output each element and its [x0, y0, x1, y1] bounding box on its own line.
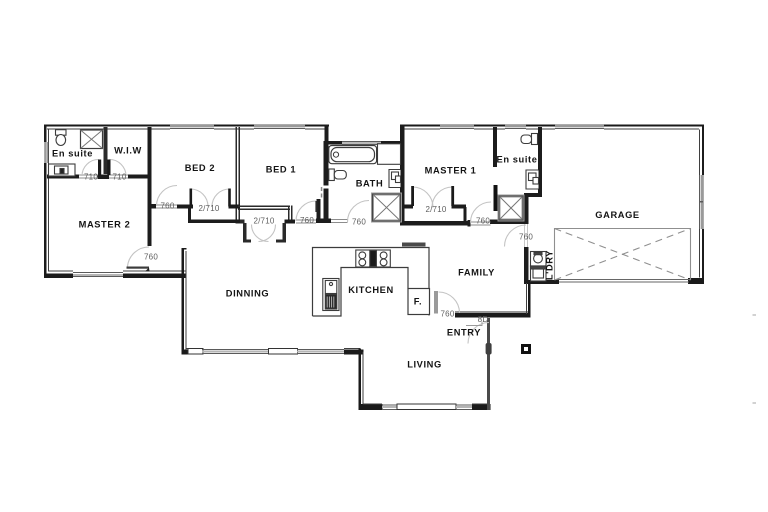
svg-text:En suite: En suite: [52, 149, 93, 159]
svg-text:2/710: 2/710: [253, 217, 274, 226]
svg-text:W.I.W: W.I.W: [114, 146, 142, 156]
svg-text:760: 760: [300, 216, 314, 225]
svg-text:BED 1: BED 1: [266, 165, 296, 175]
svg-text:BATH: BATH: [356, 179, 384, 189]
svg-text:BED 2: BED 2: [185, 163, 215, 173]
svg-text:710: 710: [113, 173, 127, 182]
svg-text:En suite: En suite: [497, 155, 538, 165]
svg-text:ENTRY: ENTRY: [447, 328, 481, 338]
svg-text:760: 760: [519, 233, 533, 242]
svg-text:MASTER 2: MASTER 2: [79, 220, 131, 230]
svg-text:760: 760: [441, 310, 455, 319]
svg-text:8D: 8D: [478, 315, 489, 324]
svg-text:GARAGE: GARAGE: [595, 210, 639, 220]
svg-text:2/710: 2/710: [198, 204, 219, 213]
svg-text:2/710: 2/710: [425, 205, 446, 214]
svg-text:760: 760: [161, 202, 175, 211]
svg-text:FAMILY: FAMILY: [458, 268, 495, 278]
svg-text:710: 710: [84, 173, 98, 182]
svg-text:760: 760: [476, 217, 490, 226]
svg-text:KITCHEN: KITCHEN: [348, 285, 394, 295]
svg-text:760: 760: [352, 218, 366, 227]
svg-text:MASTER 1: MASTER 1: [425, 166, 477, 176]
svg-text:DINNING: DINNING: [226, 289, 269, 299]
svg-text:F.: F.: [414, 297, 422, 307]
svg-text:LIVING: LIVING: [407, 360, 442, 370]
svg-text:760: 760: [144, 253, 158, 262]
svg-text:L'DRY: L'DRY: [545, 250, 555, 280]
